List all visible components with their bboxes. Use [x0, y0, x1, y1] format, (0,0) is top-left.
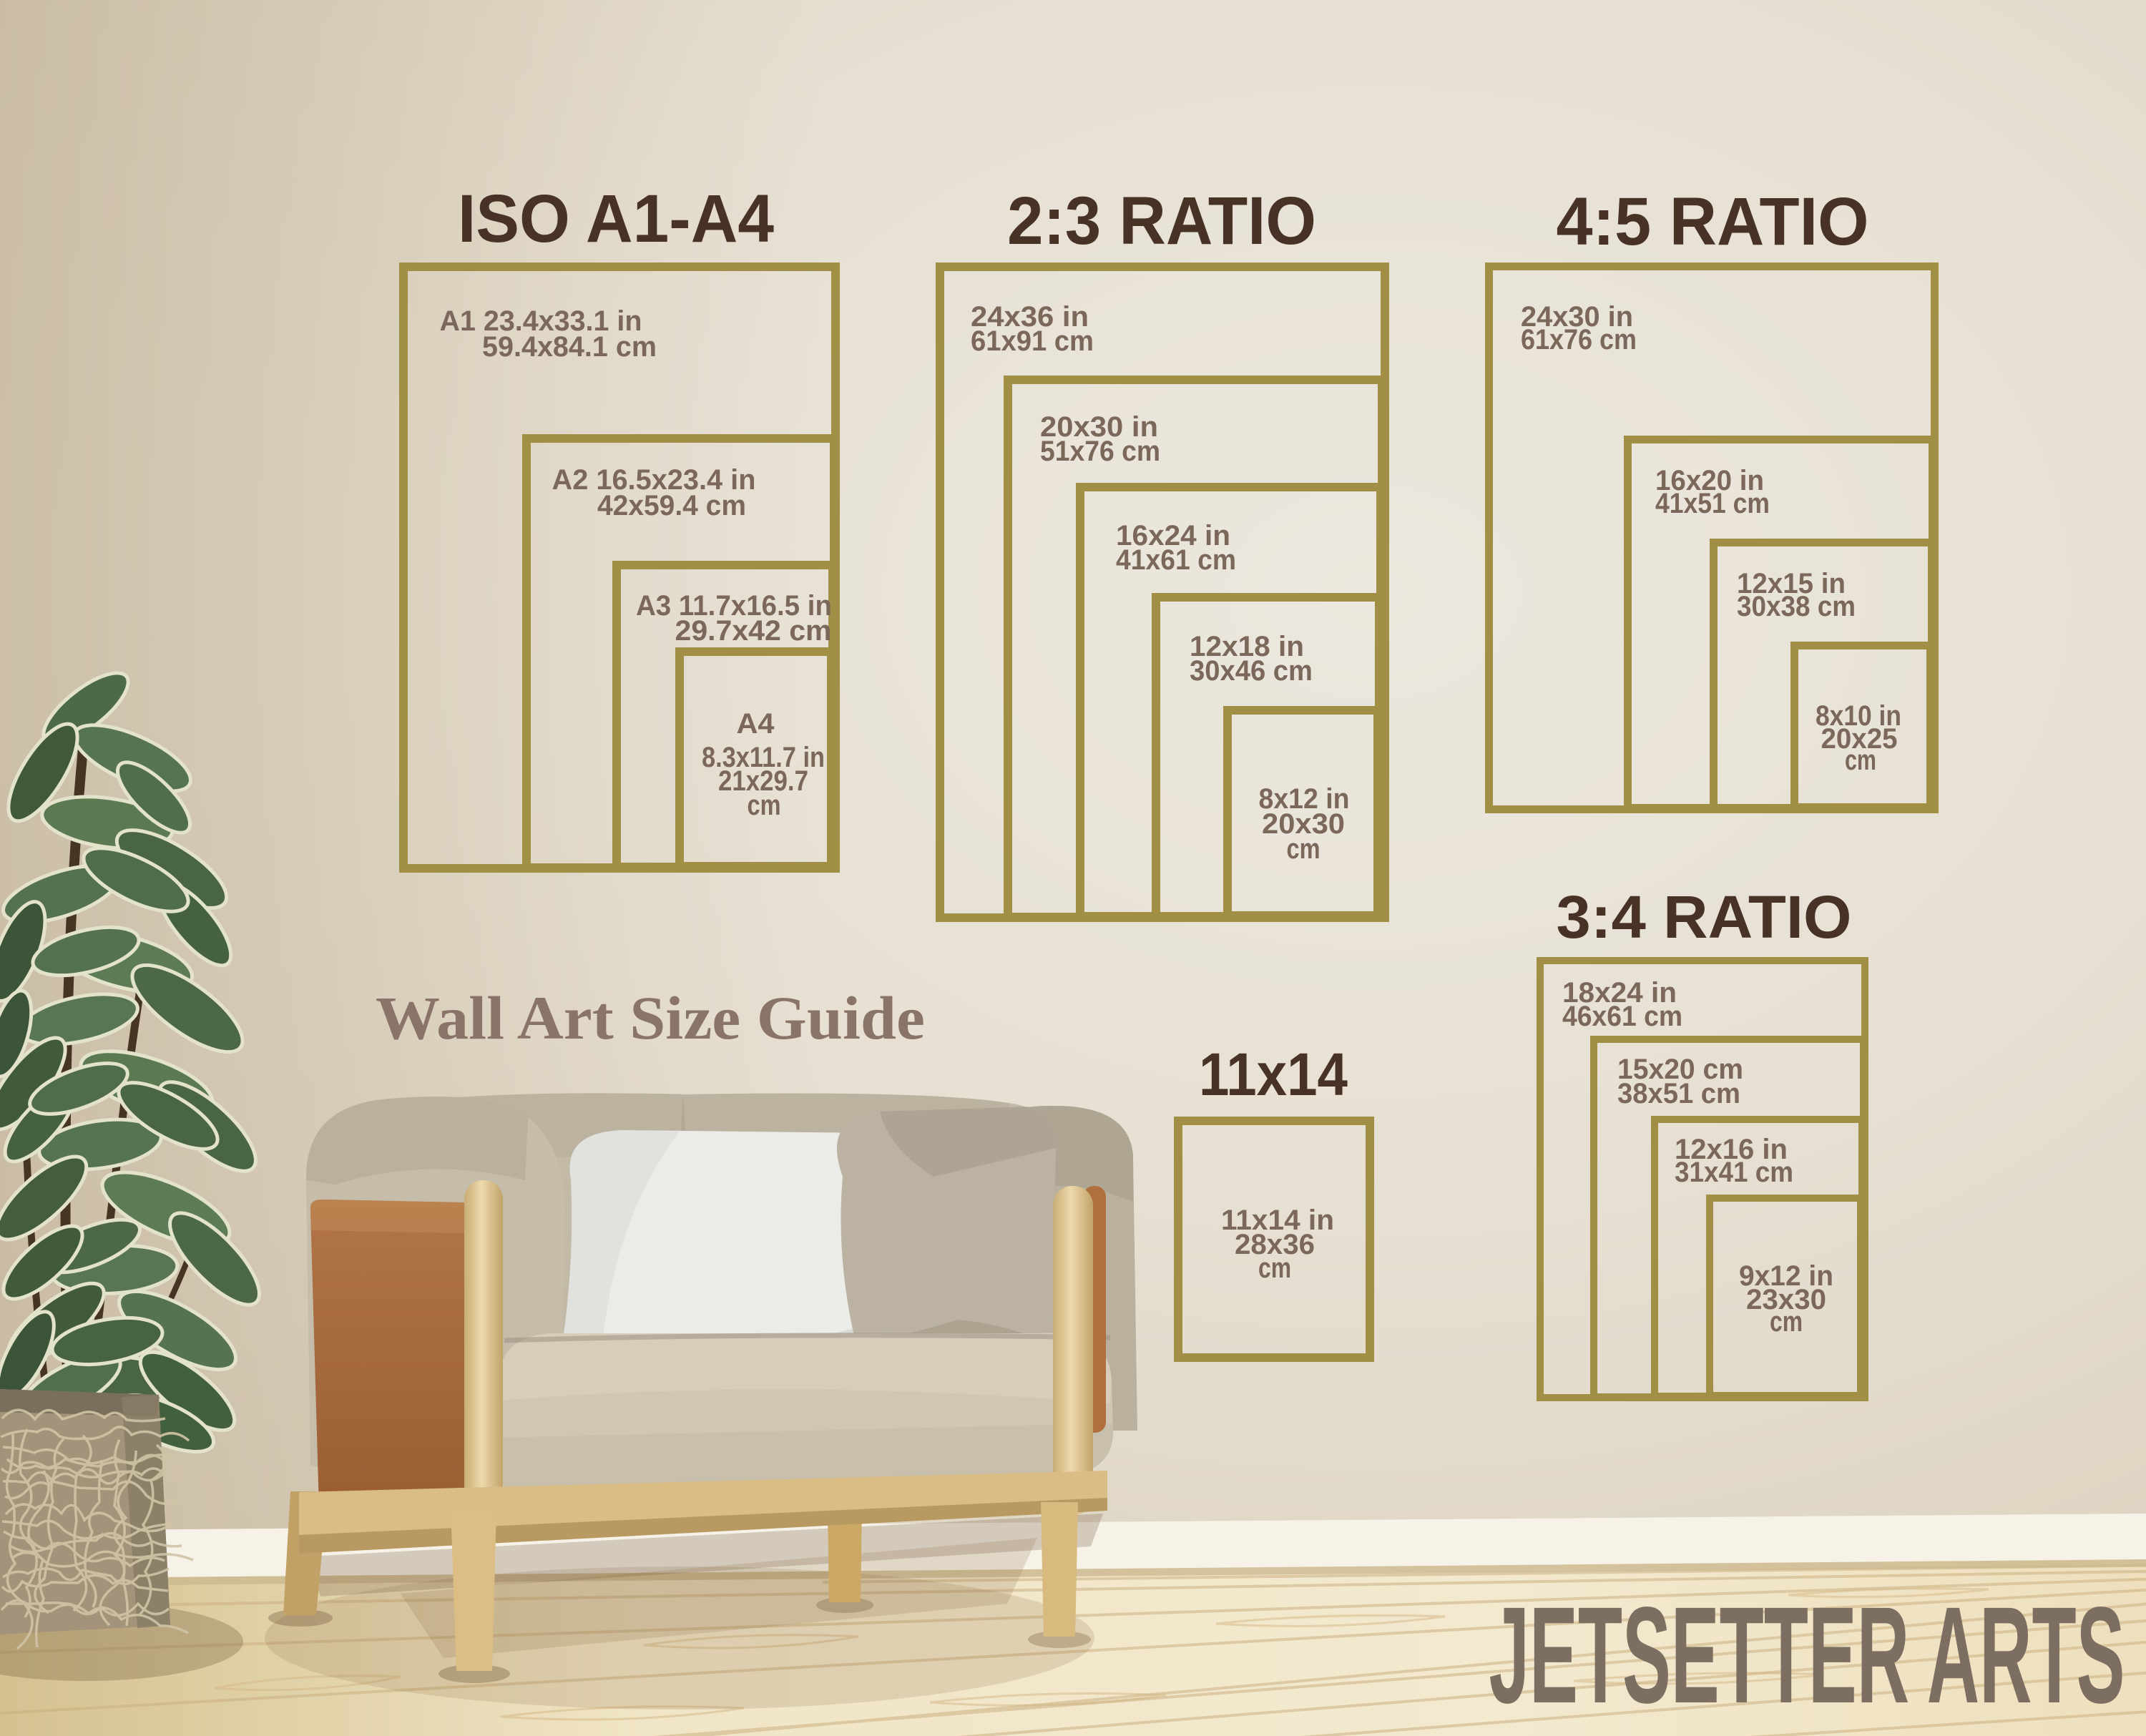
svg-text:cm: cm	[748, 790, 781, 821]
svg-text:3:4 RATIO: 3:4 RATIO	[1557, 883, 1852, 951]
svg-text:2:3 RATIO: 2:3 RATIO	[1007, 183, 1316, 259]
svg-text:61x76 cm: 61x76 cm	[1521, 324, 1637, 355]
svg-text:30x46 cm: 30x46 cm	[1190, 655, 1313, 687]
svg-text:29.7x42 cm: 29.7x42 cm	[675, 615, 832, 647]
svg-text:42x59.4 cm: 42x59.4 cm	[597, 490, 746, 521]
svg-text:38x51 cm: 38x51 cm	[1617, 1078, 1740, 1109]
svg-text:4:5 RATIO: 4:5 RATIO	[1557, 184, 1869, 260]
svg-text:Wall Art Size Guide: Wall Art Size Guide	[376, 984, 925, 1052]
svg-text:41x61 cm: 41x61 cm	[1116, 544, 1236, 576]
svg-text:cm: cm	[1287, 833, 1321, 865]
svg-text:51x76 cm: 51x76 cm	[1040, 436, 1160, 467]
svg-text:61x91 cm: 61x91 cm	[971, 325, 1094, 357]
svg-text:30x38 cm: 30x38 cm	[1737, 591, 1856, 622]
svg-text:A4: A4	[737, 708, 775, 740]
svg-text:46x61 cm: 46x61 cm	[1562, 1001, 1682, 1032]
svg-text:cm: cm	[1770, 1306, 1803, 1338]
svg-text:59.4x84.1 cm: 59.4x84.1 cm	[482, 331, 657, 363]
svg-text:ISO A1-A4: ISO A1-A4	[458, 181, 774, 257]
svg-text:31x41 cm: 31x41 cm	[1675, 1157, 1793, 1188]
svg-text:cm: cm	[1845, 745, 1876, 776]
svg-text:11x14: 11x14	[1199, 1041, 1348, 1108]
svg-text:JETSETTER ARTS: JETSETTER ARTS	[1489, 1578, 2125, 1732]
svg-text:cm: cm	[1258, 1252, 1291, 1284]
svg-text:41x51 cm: 41x51 cm	[1655, 488, 1770, 519]
